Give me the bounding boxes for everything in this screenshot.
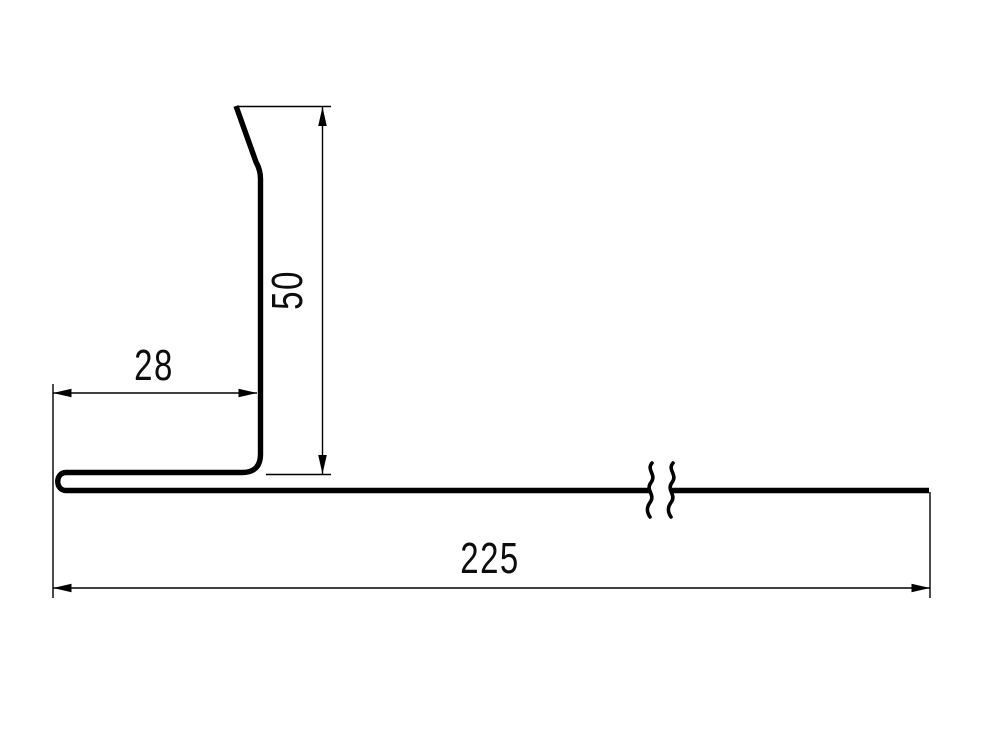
dimension-label-height: 50 <box>264 270 313 310</box>
arrowhead-50-bottom-icon <box>318 455 327 474</box>
break-symbol <box>647 463 673 517</box>
dimension-arrowheads <box>53 107 930 592</box>
technical-drawing: 28 50 225 <box>0 0 992 737</box>
drawing-canvas: 28 50 225 <box>0 0 992 737</box>
arrowhead-50-top-icon <box>318 107 327 126</box>
profile-outline <box>58 106 929 491</box>
arrowhead-28-right-icon <box>239 389 258 398</box>
dimension-lines <box>53 107 930 599</box>
arrowhead-28-left-icon <box>53 389 72 398</box>
break-mark-left-icon <box>647 463 652 517</box>
dimension-label-flange: 28 <box>134 342 174 391</box>
dimension-label-length: 225 <box>460 535 520 584</box>
arrowhead-225-left-icon <box>53 584 72 593</box>
profile-main-path <box>58 106 650 491</box>
dimension-labels: 28 50 225 <box>134 270 520 583</box>
arrowhead-225-right-icon <box>912 584 931 593</box>
